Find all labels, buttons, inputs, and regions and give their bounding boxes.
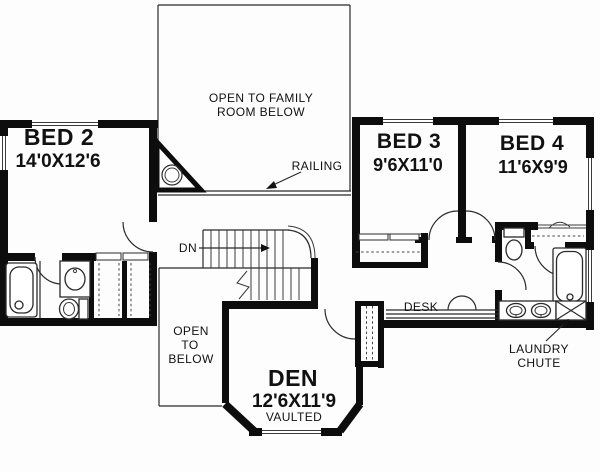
stair-break-line: [237, 271, 249, 299]
closet-door-panel: [96, 253, 121, 260]
desk-chair: [448, 296, 476, 310]
floor-plan-drawing: BED 2 14'0X12'6 OPEN TO FAMILY ROOM BELO…: [0, 0, 600, 472]
toilet-left: [60, 299, 89, 319]
door-bath-right: [498, 262, 526, 290]
open-to-family-line2: ROOM BELOW: [217, 105, 305, 119]
laundry-chute-line2: CHUTE: [517, 356, 560, 370]
den-dimensions: 12'6X11'9: [252, 391, 336, 412]
railing-arrow: [266, 172, 301, 189]
open-to-below-line3: BELOW: [168, 352, 214, 366]
railing-label: RAILING: [292, 159, 343, 173]
bed3-label: BED 3: [377, 130, 441, 153]
closet-door-panel: [123, 253, 148, 260]
closet-door-panel: [390, 234, 419, 240]
door-bed4: [466, 211, 495, 240]
window-bed3-top: [383, 117, 433, 125]
bed2-dimensions: 14'0X12'6: [15, 151, 100, 172]
window-bath-right: [586, 250, 594, 302]
window-bed4-right: [586, 158, 594, 210]
down-label: DN: [179, 241, 197, 255]
den-note: VAULTED: [266, 410, 322, 424]
door-den: [325, 309, 355, 339]
door-bed3: [429, 211, 458, 240]
vanity-sink-left: [60, 261, 90, 297]
laundry-chute-box: [556, 301, 586, 320]
open-to-below-line1: OPEN: [173, 324, 209, 338]
door-bed2: [123, 222, 153, 252]
open-to-below-line2: TO: [181, 338, 198, 352]
water-closet-toilet: [504, 228, 524, 260]
door-bath-left: [35, 257, 62, 284]
double-sink-vanity: [499, 301, 556, 320]
staircase-down: [159, 226, 315, 300]
bed4-label: BED 4: [500, 132, 564, 155]
window-bed4-top: [499, 117, 553, 125]
bathtub-left: [6, 263, 37, 317]
left-bathroom: [6, 261, 90, 319]
stair-treads-upper: [211, 230, 283, 268]
desk-label: DESK: [404, 300, 438, 314]
bed4-dimensions: 11'6X9'9: [498, 157, 568, 177]
window-den-bottom: [262, 428, 321, 436]
fireplace-chimney: [157, 142, 201, 190]
stair-treads-lower: [251, 268, 299, 300]
open-to-family-line1: OPEN TO FAMILY: [209, 91, 313, 105]
floor-plan-page: BED 2 14'0X12'6 OPEN TO FAMILY ROOM BELO…: [0, 0, 600, 472]
window-bed2-left: [0, 136, 8, 170]
bathtub-right: [553, 248, 586, 305]
closet-door-panel: [359, 234, 388, 240]
bed3-dimensions: 9'6X11'0: [373, 155, 443, 175]
laundry-chute-line1: LAUNDRY: [509, 342, 569, 356]
den-label: DEN: [268, 365, 318, 391]
bed2-label: BED 2: [24, 124, 94, 150]
right-bathroom: [499, 228, 586, 320]
